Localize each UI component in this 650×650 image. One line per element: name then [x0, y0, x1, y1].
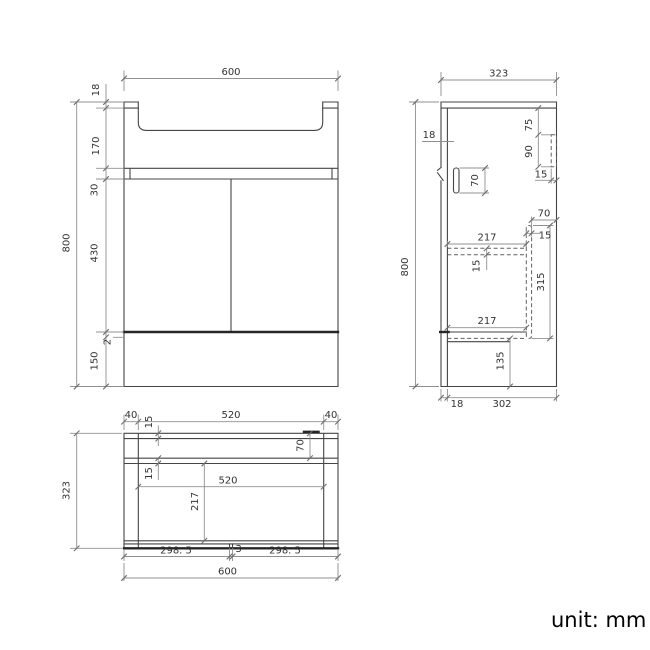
side-view: 323 800 18 75 90 15 70 70 15 217 15 315 … [400, 69, 559, 411]
plan-inner-width-label: 520 [218, 476, 237, 487]
front-width-label: 600 [221, 67, 240, 78]
front-top-thickness-label: 18 [91, 84, 102, 97]
side-panel-thickness-label: 15 [539, 231, 552, 242]
side-bracket-height-label: 90 [524, 145, 535, 158]
side-shelf-thickness-label: 15 [472, 260, 483, 273]
plan-door-right-label: 298. 5 [269, 546, 301, 557]
unit-note: unit: mm [551, 608, 646, 632]
plan-margin-left-label: 40 [125, 410, 138, 421]
plan-margin-right-label: 40 [325, 410, 338, 421]
side-door-thickness-label: 18 [423, 130, 436, 141]
front-rail-height-label: 30 [90, 184, 101, 197]
front-dim-ticks [74, 76, 341, 390]
plan-door-left-label: 298. 5 [160, 546, 192, 557]
plan-depth-label: 323 [62, 481, 73, 500]
plan-basin-width-label: 520 [221, 410, 240, 421]
side-top-shelf-depth-label: 217 [477, 233, 496, 244]
plan-door-gap-label: 3 [235, 544, 241, 555]
side-bracket-offset-label: 75 [524, 119, 535, 132]
plan-rail-offset-label: 70 [296, 439, 307, 452]
basin-bowl-outline [138, 102, 322, 130]
plan-back-thickness-label: 15 [144, 416, 155, 429]
side-depth-label: 323 [489, 69, 508, 80]
plan-inner-depth-label: 217 [190, 492, 201, 511]
front-base-height-label: 150 [90, 351, 101, 370]
vanity-dimension-drawing: 600 800 18 170 30 430 2 150 323 800 18 7… [0, 0, 650, 650]
plan-width-label: 600 [218, 567, 237, 578]
side-panel-gap-label: 70 [538, 209, 551, 220]
front-height-label: 800 [62, 233, 73, 252]
plan-view: 40 520 40 15 70 15 520 217 323 298. 5 3 … [62, 410, 341, 581]
side-bottom-door-label: 18 [451, 399, 464, 410]
front-gap-label: 2 [103, 339, 114, 345]
side-hinge-height-label: 70 [470, 174, 481, 187]
side-height-label: 800 [400, 257, 411, 276]
front-door-height-label: 430 [90, 243, 101, 262]
side-bottom-shelf-depth-label: 217 [477, 316, 496, 327]
technical-drawing-page: 600 800 18 170 30 430 2 150 323 800 18 7… [0, 0, 650, 650]
front-basin-height-label: 170 [91, 136, 102, 155]
plan-rail-thickness-label: 15 [144, 467, 155, 480]
hinge-plate [454, 168, 460, 193]
side-bottom-depth-label: 302 [492, 399, 511, 410]
front-rail-band [124, 168, 338, 179]
front-view: 600 800 18 170 30 430 2 150 [62, 67, 341, 389]
wall-bracket-hidden [551, 135, 556, 167]
side-bracket-width-label: 15 [535, 170, 548, 181]
side-base-height-label: 135 [496, 351, 507, 370]
side-panel-height-label: 315 [536, 272, 547, 291]
